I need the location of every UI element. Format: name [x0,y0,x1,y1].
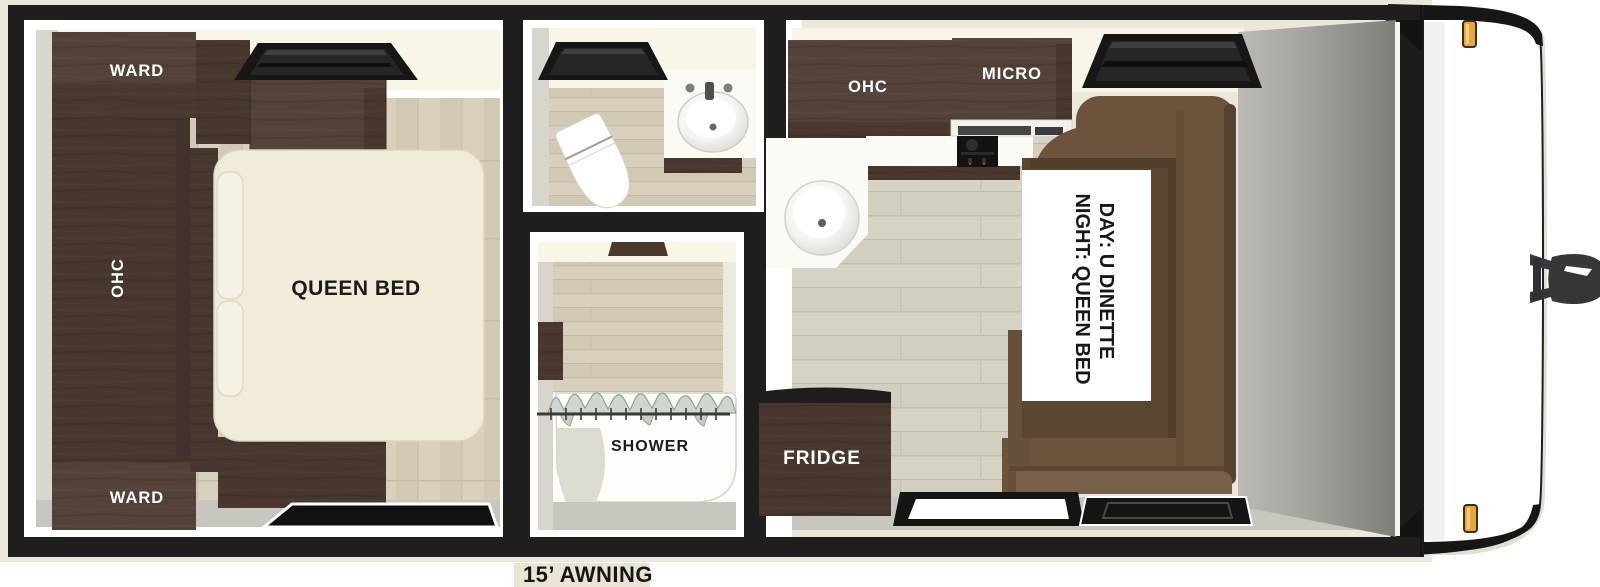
svg-text:OHC: OHC [848,78,888,96]
svg-text:MICRO: MICRO [982,65,1042,83]
svg-text:WARD: WARD [110,489,164,507]
svg-text:SHOWER: SHOWER [611,438,689,455]
svg-text:FRIDGE: FRIDGE [783,448,861,469]
svg-text:QUEEN BED: QUEEN BED [291,277,420,300]
svg-text:NIGHT: QUEEN BED: NIGHT: QUEEN BED [1071,193,1093,384]
svg-text:WARD: WARD [110,62,164,80]
svg-text:15’ AWNING: 15’ AWNING [523,562,653,587]
svg-text:OHC: OHC [109,258,127,298]
svg-text:DAY: U DINETTE: DAY: U DINETTE [1095,203,1117,360]
